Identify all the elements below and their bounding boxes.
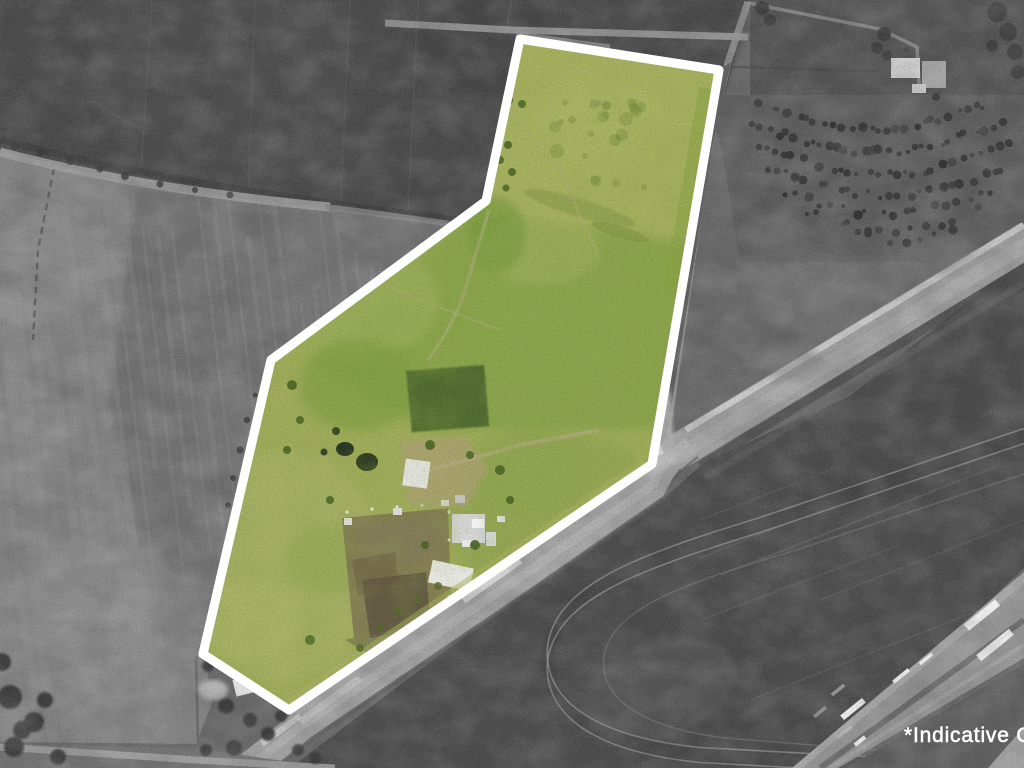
svg-text:*Indicative Only: *Indicative Only: [904, 724, 1024, 747]
